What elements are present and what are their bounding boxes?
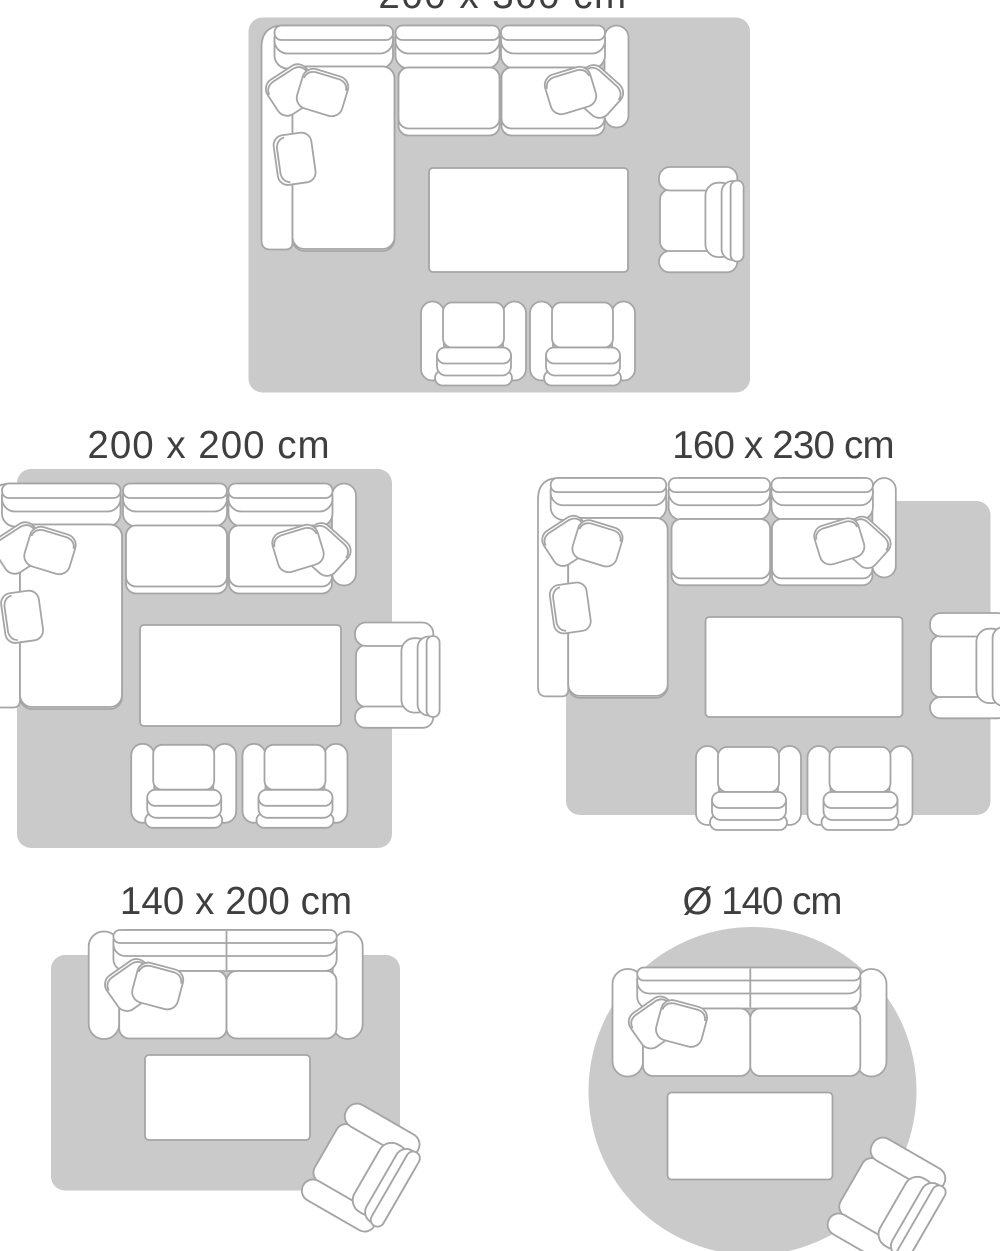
- svg-text:160 x 230 cm: 160 x 230 cm: [672, 424, 894, 467]
- svg-text:200 x 200 cm: 200 x 200 cm: [87, 424, 330, 467]
- svg-text:200 x 300 cm: 200 x 300 cm: [378, 0, 627, 17]
- svg-text:140 x 200 cm: 140 x 200 cm: [120, 880, 352, 923]
- svg-text:Ø 140 cm: Ø 140 cm: [683, 880, 842, 923]
